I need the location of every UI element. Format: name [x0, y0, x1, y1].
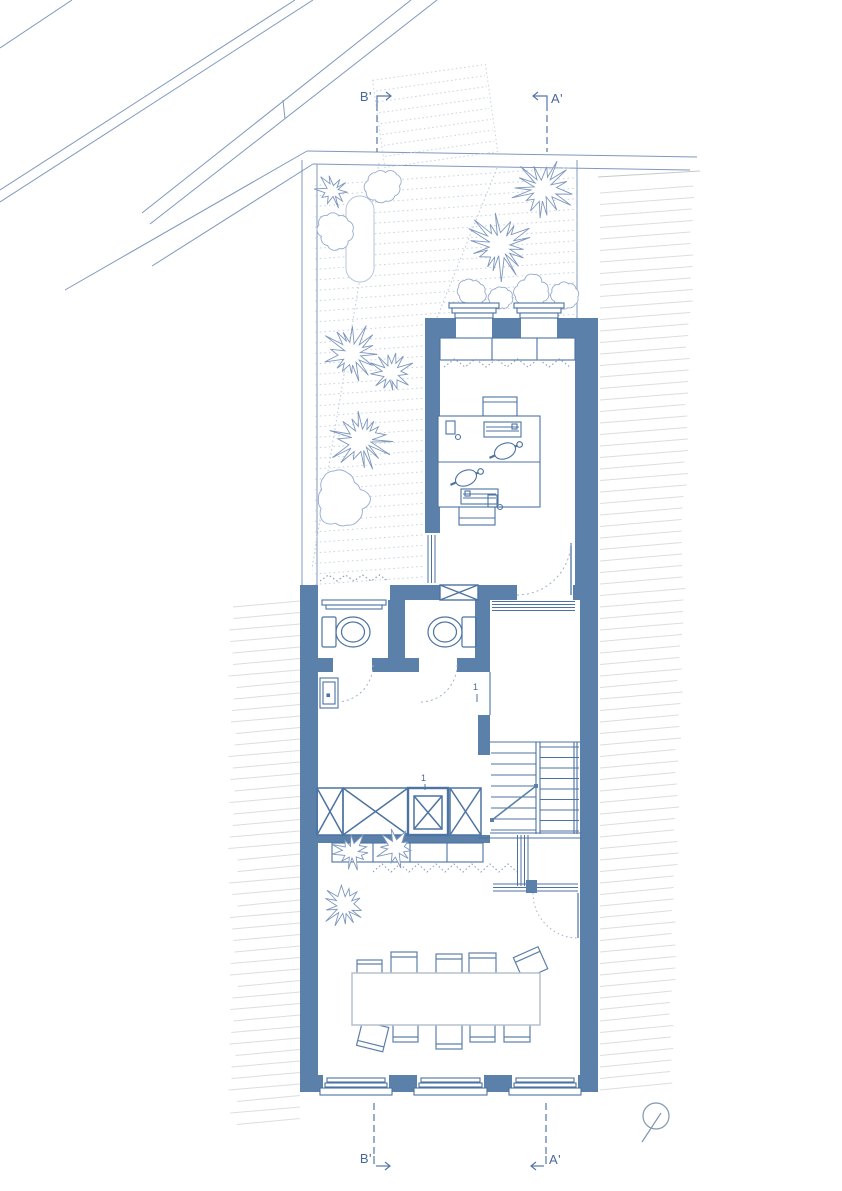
vestibule-glazing [493, 835, 578, 893]
right-neighbor-hatch [600, 186, 694, 1090]
electrical-panel [320, 678, 338, 708]
door-tag-hall: 1 [473, 683, 478, 692]
section-line-a-bottom [531, 1103, 546, 1170]
chair [436, 954, 462, 975]
chair [504, 1023, 530, 1042]
toilet-window-sill [322, 600, 386, 609]
section-label-a-bottom: A' [549, 1153, 561, 1166]
crossed-shaft [343, 788, 408, 835]
chair [391, 952, 417, 975]
chair [436, 1023, 462, 1049]
left-neighbor-hatch [229, 601, 300, 1125]
facade-window-sills [320, 1078, 581, 1095]
office-room [438, 338, 575, 611]
storage-shaft-row [317, 784, 481, 835]
dining-table-set [352, 947, 548, 1052]
door-tag-elevator: 1 [421, 774, 426, 783]
chair [470, 1023, 495, 1042]
chair [469, 953, 496, 975]
crossed-shaft [317, 788, 343, 835]
desk-chair-bottom [459, 506, 495, 525]
toilet-right [428, 617, 476, 647]
section-label-b-bottom: B' [350, 1152, 372, 1165]
crossed-shaft [450, 788, 481, 835]
window-bench [440, 338, 575, 360]
section-line-a-top [533, 92, 547, 152]
section-line-b-bottom [374, 1103, 390, 1170]
section-label-a-top: A' [551, 92, 563, 105]
section-label-b-top: B' [350, 90, 372, 103]
dining-table [352, 973, 540, 1025]
toilet-curtain [320, 575, 388, 581]
floor-plan-drawing [0, 0, 842, 1191]
desk-chair-top [483, 397, 517, 416]
floor-plan-canvas: B' A' B' A' 1 1 [0, 0, 842, 1191]
section-line-b-top [377, 92, 391, 152]
north-indicator-icon [642, 1103, 669, 1142]
door-threshold [492, 602, 575, 611]
dining-room [332, 835, 578, 893]
chair [393, 1023, 418, 1042]
hallway [320, 672, 490, 715]
toilet-left [322, 617, 370, 647]
curtain-zigzag [373, 864, 517, 872]
staircase [477, 694, 582, 838]
elevator [408, 784, 448, 835]
